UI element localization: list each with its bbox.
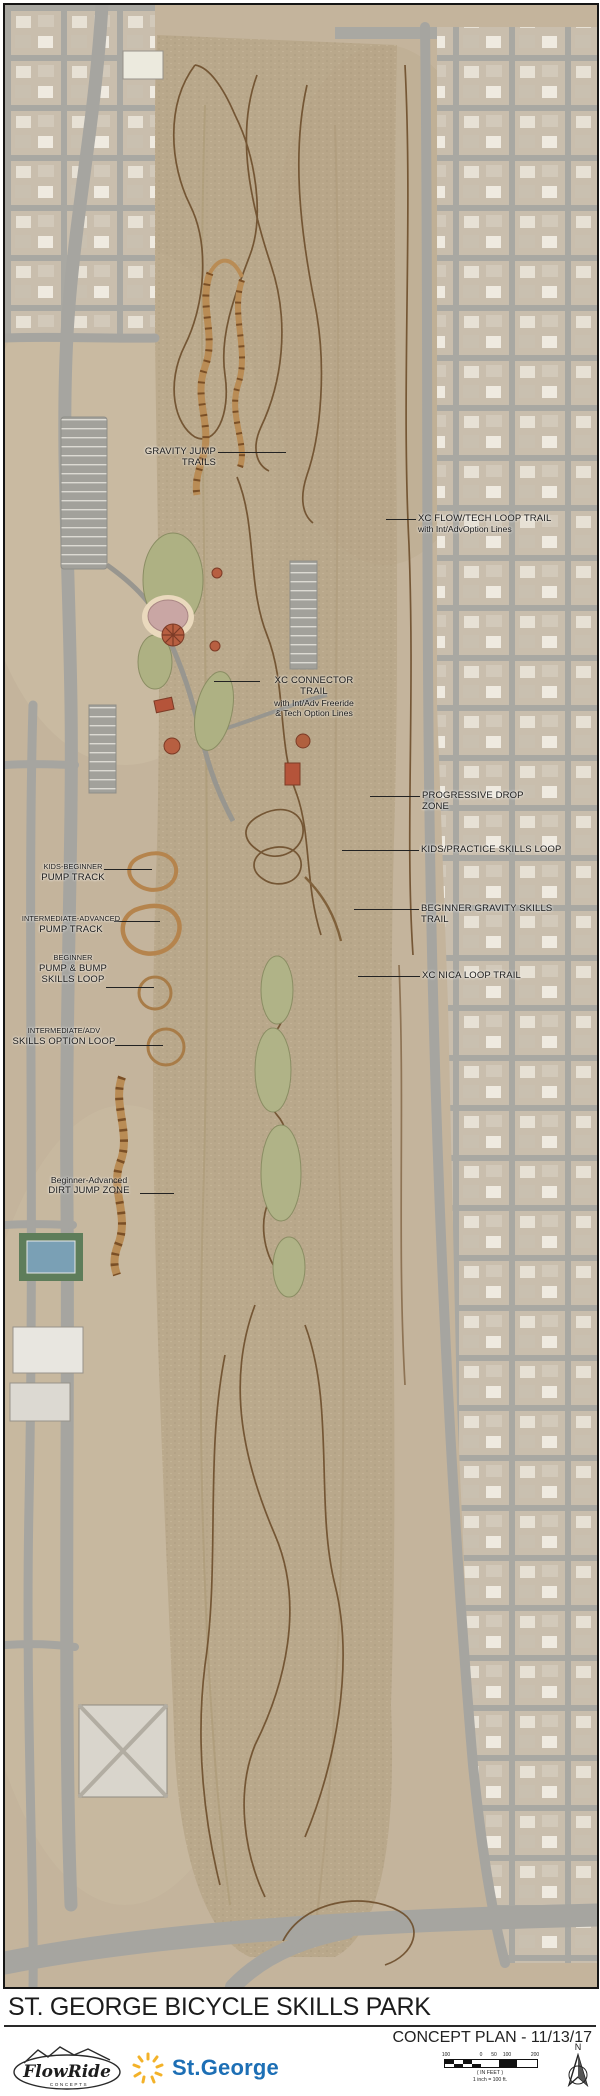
label-xc-flow-tech-loop: XC FLOW/TECH LOOP TRAIL with Int/AdvOpti… [418,513,578,535]
label-text: PUMP & BUMP [32,963,114,974]
label-intermediate-advanced-pump-track: INTERMEDIATE-ADVANCED PUMP TRACK [20,915,122,935]
label-progressive-drop-zone: PROGRESSIVE DROP ZONE [422,790,552,813]
flowride-tagline: CONCEPTS [50,2082,88,2087]
flowride-wordmark: FlowRide [22,2062,111,2082]
label-leader-line [218,452,286,453]
scale-units-label: ( IN FEET ) [444,2070,536,2076]
scale-ratio-label: 1 inch = 100 ft. [444,2077,536,2083]
label-xc-nica-loop-trail: XC NICA LOOP TRAIL [422,970,532,981]
skills-feature [296,734,310,748]
sun-icon [130,2050,166,2086]
stgeorge-wordmark: St.George [172,2055,279,2081]
scale-bar: 100 0 50 100 200 ( IN FEET ) 1 inch = 10… [444,2052,544,2083]
label-text: with Int/Adv Freeride [260,698,368,708]
label-text: PUMP TRACK [32,872,114,883]
label-gravity-jump-trails: GRAVITY JUMP TRAILS [118,446,216,469]
flowride-logo: FlowRide CONCEPTS [12,2043,124,2093]
label-text: XC NICA LOOP TRAIL [422,970,532,981]
label-text: BEGINNER GRAVITY SKILLS TRAIL [421,903,576,926]
label-text: SKILLS LOOP [32,974,114,985]
label-leader-line [106,987,154,988]
label-text: & Tech Option Lines [260,708,368,718]
concept-plan-sheet: GRAVITY JUMP TRAILS XC FLOW/TECH LOOP TR… [0,0,600,2096]
aerial-map: GRAVITY JUMP TRAILS XC FLOW/TECH LOOP TR… [3,3,599,1989]
scale-tick: 50 [491,2052,497,2058]
scale-checker [445,2060,481,2067]
stgeorge-logo: St.George [130,2050,279,2086]
scale-tick: 100 [442,2052,450,2058]
label-text: GRAVITY JUMP TRAILS [118,446,216,469]
scale-bar-graphic [444,2059,538,2068]
label-leader-line [358,976,420,977]
label-text: XC CONNECTOR TRAIL [260,675,368,698]
drop-zone-structure [285,763,300,785]
label-kids-beginner-pump-track: KIDS-BEGINNER PUMP TRACK [32,863,114,883]
north-arrow: N [564,2042,592,2094]
label-leader-line [115,1045,163,1046]
label-text: INTERMEDIATE/ADV [7,1027,121,1036]
aerial-imagery [5,5,597,1987]
flowride-logo-art: FlowRide CONCEPTS [12,2043,124,2093]
label-beginner-pump-bump-skills-loop: BEGINNER PUMP & BUMP SKILLS LOOP [32,954,114,986]
label-dirt-jump-zone: Beginner-Advanced DIRT JUMP ZONE [32,1175,146,1197]
label-leader-line [214,681,260,682]
label-leader-line [354,909,419,910]
label-text: with Int/AdvOption Lines [418,524,578,534]
label-text: DIRT JUMP ZONE [32,1185,146,1196]
label-text: KIDS/PRACTICE SKILLS LOOP [421,844,566,855]
label-beginner-gravity-skills-trail: BEGINNER GRAVITY SKILLS TRAIL [421,903,576,926]
scale-ticks: 100 0 50 100 200 [444,2052,544,2059]
label-text: PUMP TRACK [20,924,122,935]
label-text: INTERMEDIATE-ADVANCED [20,915,122,924]
sheet-title: ST. GEORGE BICYCLE SKILLS PARK [8,1993,431,2022]
label-text: XC FLOW/TECH LOOP TRAIL [418,513,578,524]
scale-tick: 100 [503,2052,511,2058]
title-underline [4,2025,596,2027]
label-text: BEGINNER [32,954,114,963]
north-label: N [564,2042,592,2052]
label-leader-line [370,796,420,797]
label-xc-connector-trail: XC CONNECTOR TRAIL with Int/Adv Freeride… [260,675,368,719]
label-kids-practice-skills-loop: KIDS/PRACTICE SKILLS LOOP [421,844,566,855]
label-text: PROGRESSIVE DROP ZONE [422,790,552,813]
label-intermediate-adv-skills-option-loop: INTERMEDIATE/ADV SKILLS OPTION LOOP [7,1027,121,1047]
label-leader-line [342,850,419,851]
label-text: Beginner-Advanced [32,1175,146,1185]
label-leader-line [386,519,416,520]
plan-date-label: CONCEPT PLAN - 11/13/17 [393,2029,593,2047]
label-text: KIDS-BEGINNER [32,863,114,872]
scale-tick: 200 [531,2052,539,2058]
scale-tick: 0 [480,2052,483,2058]
north-arrow-icon [564,2053,592,2089]
label-text: SKILLS OPTION LOOP [7,1036,121,1047]
